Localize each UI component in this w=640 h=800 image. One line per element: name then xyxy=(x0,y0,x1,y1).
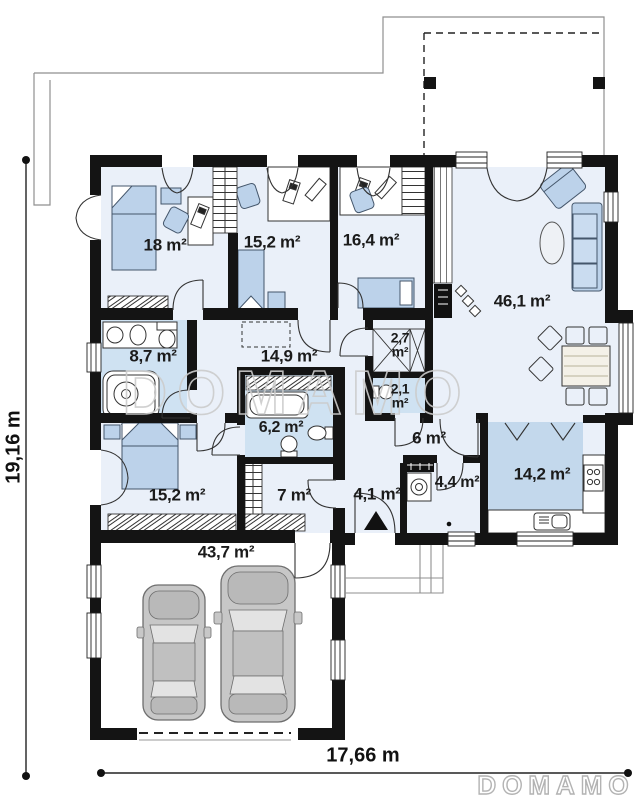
desk xyxy=(188,197,213,245)
kitchen-sink xyxy=(534,513,570,530)
window xyxy=(331,565,345,598)
bathroom-counter xyxy=(103,322,177,348)
window xyxy=(619,323,633,413)
dining-table xyxy=(562,346,610,386)
window xyxy=(456,152,487,168)
dimension-height-label: 19,16 m xyxy=(3,410,26,483)
coffee-table xyxy=(540,222,564,264)
bed xyxy=(238,250,264,310)
room-label-kitchen: 14,2 m² xyxy=(514,465,571,482)
toilet xyxy=(281,436,297,457)
bed xyxy=(112,186,156,270)
room-label-wc: 2,1 m² xyxy=(391,382,410,411)
window xyxy=(331,640,345,680)
desk xyxy=(268,167,330,221)
terrace-post xyxy=(424,77,436,89)
wardrobe xyxy=(245,514,305,531)
nightstand xyxy=(268,292,285,309)
bed xyxy=(358,278,414,308)
terrace xyxy=(424,33,605,155)
room-label-bedroom-2: 15,2 m² xyxy=(244,233,301,250)
room-label-wardrobe: 7 m² xyxy=(277,486,311,503)
room-label-pantry: 2,7 m² xyxy=(391,331,410,360)
window xyxy=(87,613,101,658)
chimney-duct xyxy=(433,167,452,283)
nightstand xyxy=(104,425,120,439)
window xyxy=(604,192,618,222)
terrace-post xyxy=(593,77,605,89)
room-label-garage: 43,7 m² xyxy=(198,543,255,560)
watermark-center: DOMAMO xyxy=(122,359,471,428)
window xyxy=(517,532,573,546)
floor-plan-page: DOMAMO DOMAMO 18 m² 15,2 m² 16,4 m² 46,1… xyxy=(0,0,640,800)
closet xyxy=(402,167,425,215)
dimension-width-label: 17,66 m xyxy=(326,745,399,768)
room-label-vestibule: 4,1 m² xyxy=(353,485,400,502)
car xyxy=(137,585,211,720)
window xyxy=(448,532,475,546)
floor-drain xyxy=(447,522,452,527)
room-label-hall: 6 m² xyxy=(412,429,446,446)
washing-machine xyxy=(407,473,431,501)
sofa xyxy=(572,203,602,291)
room-label-bathroom-1: 8,7 m² xyxy=(129,347,176,364)
garage-door xyxy=(139,733,291,740)
room-label-bedroom-1: 18 m² xyxy=(144,236,187,253)
bed xyxy=(122,423,178,489)
entry-porch xyxy=(345,545,443,593)
wardrobe xyxy=(108,514,236,531)
window xyxy=(547,152,582,168)
room-label-hallway: 14,9 m² xyxy=(261,347,318,364)
room-label-bedroom-3: 16,4 m² xyxy=(343,231,400,248)
floor-plan-drawing: DOMAMO DOMAMO xyxy=(0,0,640,800)
window xyxy=(87,565,101,598)
room-label-bathroom-2: 6,2 m² xyxy=(259,420,303,436)
room-label-utility: 4,4 m² xyxy=(435,475,479,491)
room-label-bedroom-4: 15,2 m² xyxy=(149,486,206,503)
closet xyxy=(213,167,237,233)
window xyxy=(87,343,101,372)
brand-logo: DOMAMO xyxy=(477,770,634,800)
room-label-living-room: 46,1 m² xyxy=(494,292,551,309)
closet xyxy=(245,463,262,514)
stove xyxy=(584,465,603,491)
car xyxy=(214,566,302,722)
sink xyxy=(308,426,333,440)
